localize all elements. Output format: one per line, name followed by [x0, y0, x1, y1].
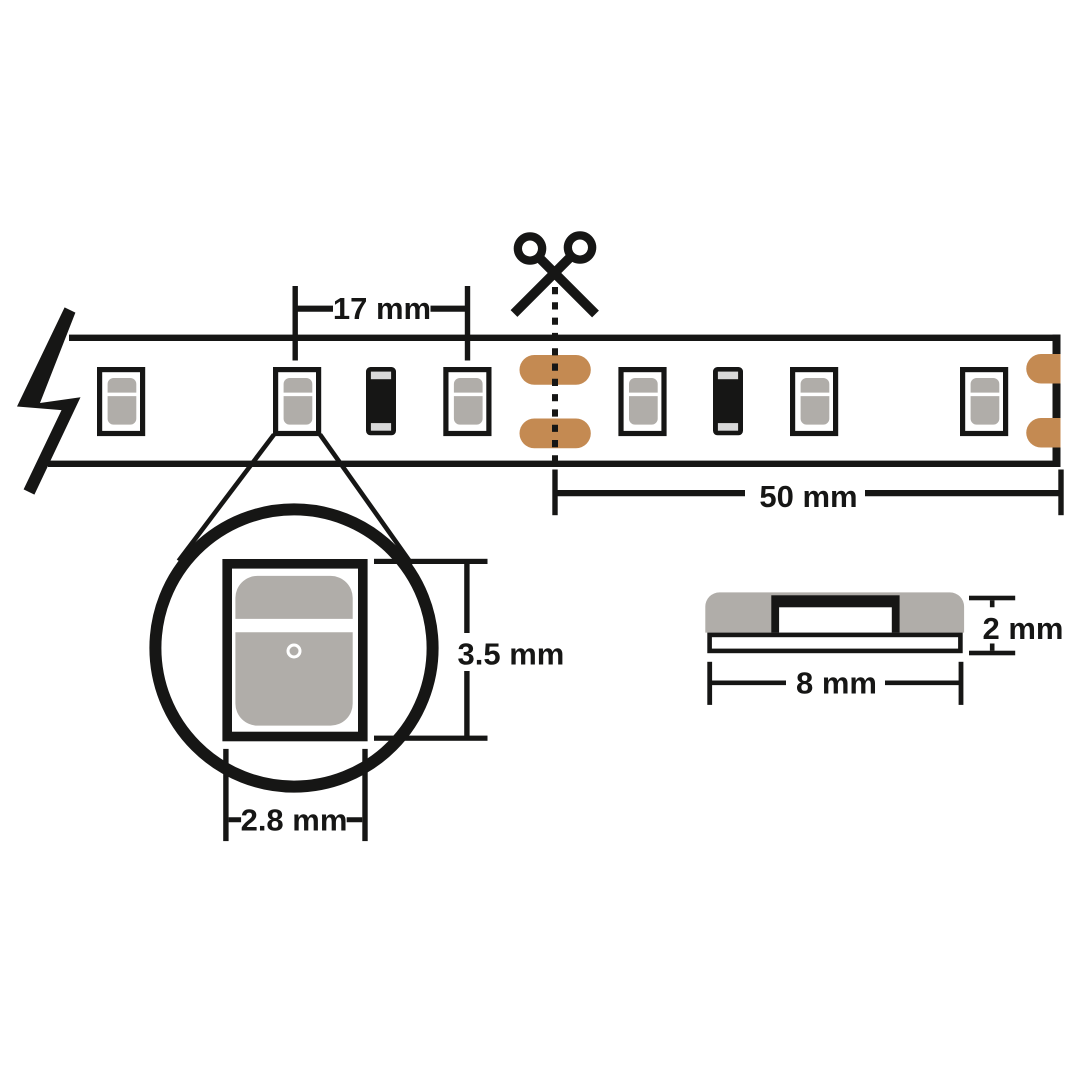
svg-text:8 mm: 8 mm — [796, 666, 877, 701]
svg-text:2 mm: 2 mm — [983, 611, 1064, 646]
svg-text:50 mm: 50 mm — [759, 479, 857, 514]
svg-text:2.8 mm: 2.8 mm — [241, 803, 348, 838]
svg-text:3.5 mm: 3.5 mm — [458, 637, 565, 672]
svg-text:17 mm: 17 mm — [333, 291, 431, 326]
